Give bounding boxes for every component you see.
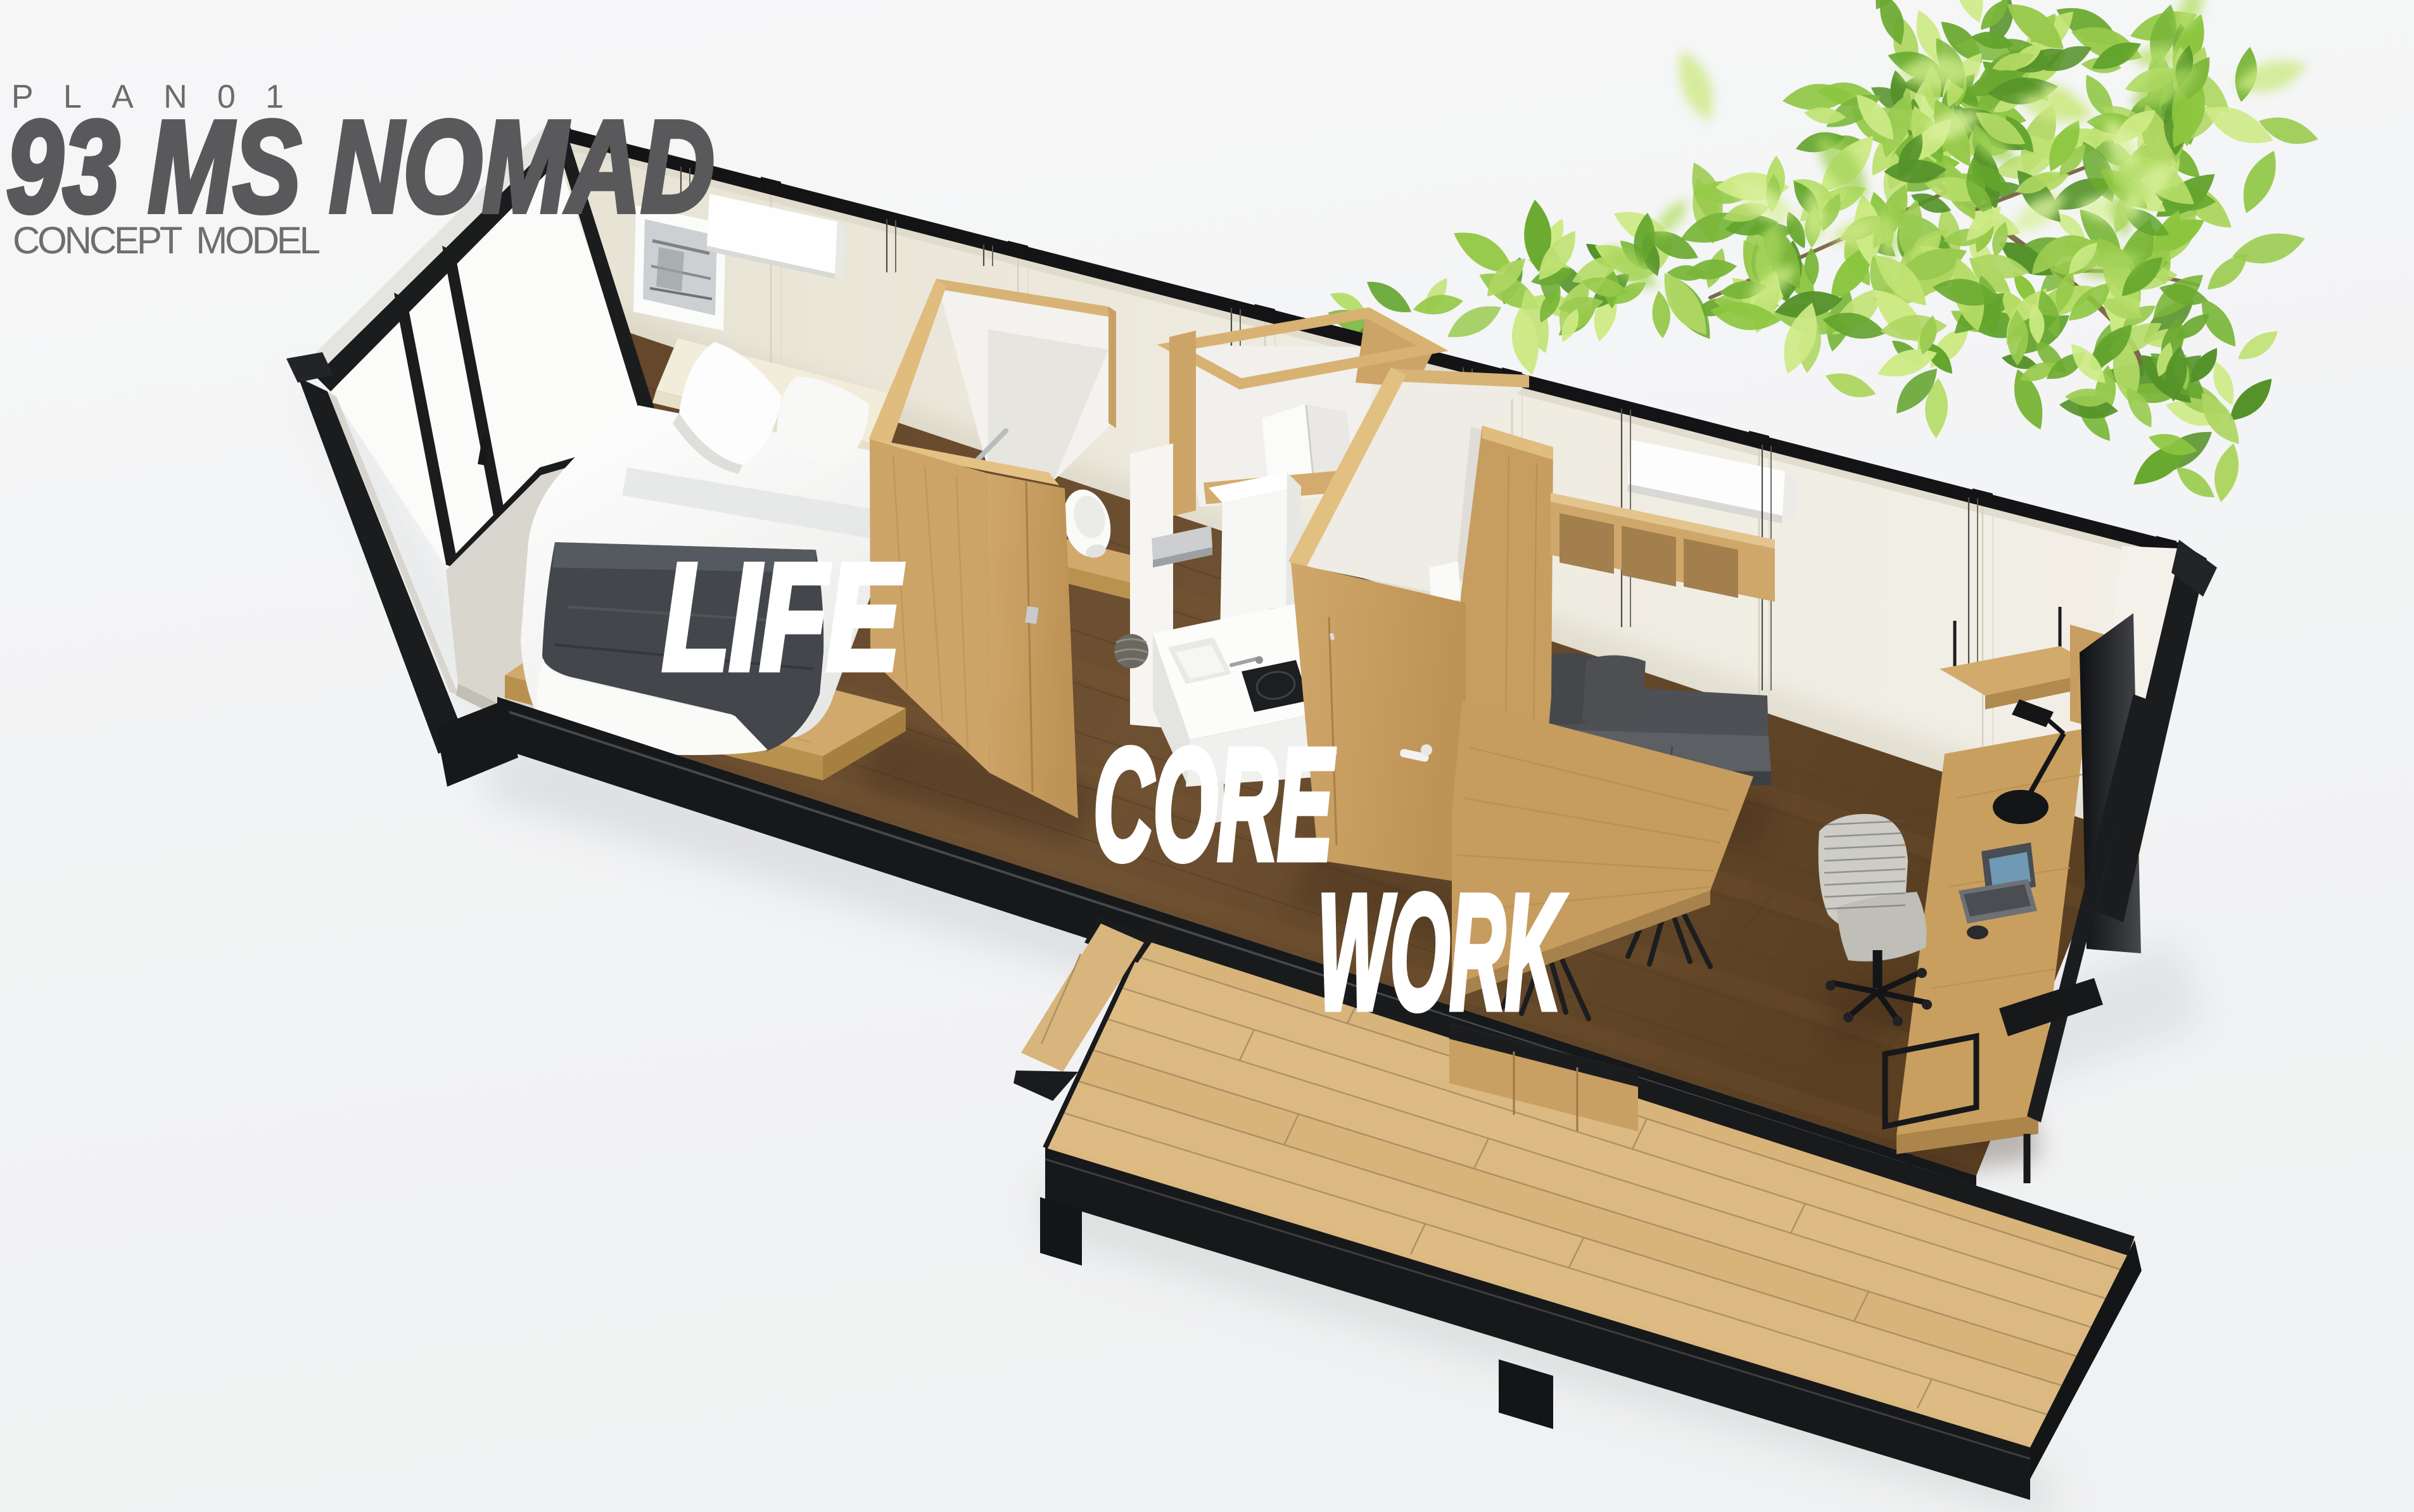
svg-text:CONCEPT MODEL: CONCEPT MODEL xyxy=(13,219,329,262)
svg-text:93 MS NOMAD: 93 MS NOMAD xyxy=(6,94,715,239)
svg-text:LIFE: LIFE xyxy=(663,533,903,701)
svg-text:CORE: CORE xyxy=(1093,716,1335,893)
svg-text:WORK: WORK xyxy=(1318,860,1566,1043)
